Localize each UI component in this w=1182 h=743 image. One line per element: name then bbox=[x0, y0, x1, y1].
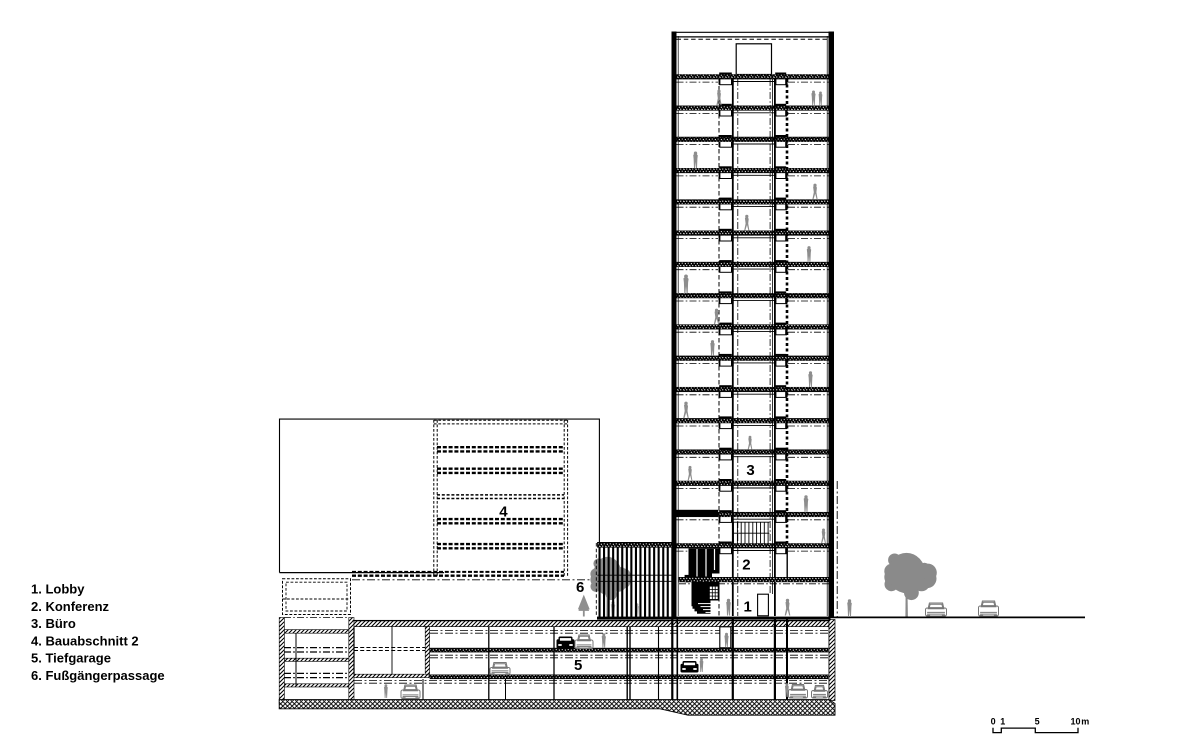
svg-text:6: 6 bbox=[576, 579, 584, 596]
svg-text:1: 1 bbox=[744, 599, 752, 616]
svg-text:5. Tiefgarage: 5. Tiefgarage bbox=[31, 651, 111, 666]
svg-text:10 m: 10 m bbox=[1071, 716, 1090, 726]
svg-text:5: 5 bbox=[1035, 716, 1040, 726]
svg-text:3. Büro: 3. Büro bbox=[31, 616, 76, 631]
svg-text:0: 0 bbox=[991, 716, 996, 726]
svg-text:1: 1 bbox=[1000, 716, 1005, 726]
svg-text:2. Konferenz: 2. Konferenz bbox=[31, 599, 110, 614]
svg-text:2: 2 bbox=[742, 557, 750, 574]
svg-text:1. Lobby: 1. Lobby bbox=[31, 582, 85, 597]
svg-text:3: 3 bbox=[746, 462, 754, 479]
svg-text:4. Bauabschnitt 2: 4. Bauabschnitt 2 bbox=[31, 633, 139, 648]
svg-text:5: 5 bbox=[574, 657, 582, 674]
svg-text:6. Fußgängerpassage: 6. Fußgängerpassage bbox=[31, 668, 165, 683]
svg-text:4: 4 bbox=[499, 503, 508, 520]
